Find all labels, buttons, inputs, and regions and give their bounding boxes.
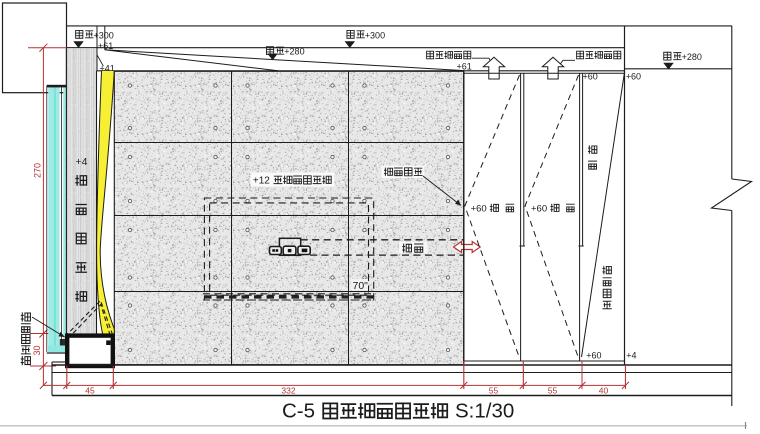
svg-text:+4: +4 [626,351,636,361]
svg-text:55: 55 [489,385,499,395]
svg-text:30: 30 [32,345,42,355]
svg-text:40: 40 [599,385,609,395]
svg-text:270: 270 [33,163,43,178]
svg-text:+300: +300 [94,30,114,40]
svg-text:S:1/30: S:1/30 [455,400,514,423]
svg-text:+60: +60 [626,71,641,81]
svg-text:+61: +61 [98,41,113,51]
svg-text:+280: +280 [284,47,304,57]
svg-text:+60: +60 [586,351,601,361]
svg-text:70": 70" [353,280,369,292]
svg-text:+61: +61 [457,61,472,71]
svg-text:C-5: C-5 [282,400,315,423]
svg-text:+12: +12 [253,176,270,187]
svg-text:+300: +300 [365,30,385,40]
svg-text:+280: +280 [682,52,702,62]
svg-text:+60: +60 [471,204,487,215]
svg-text:+4: +4 [76,156,88,168]
svg-text:55: 55 [548,385,558,395]
svg-text:332: 332 [281,385,295,395]
svg-text:+60: +60 [531,204,547,215]
svg-text:45: 45 [85,385,95,395]
